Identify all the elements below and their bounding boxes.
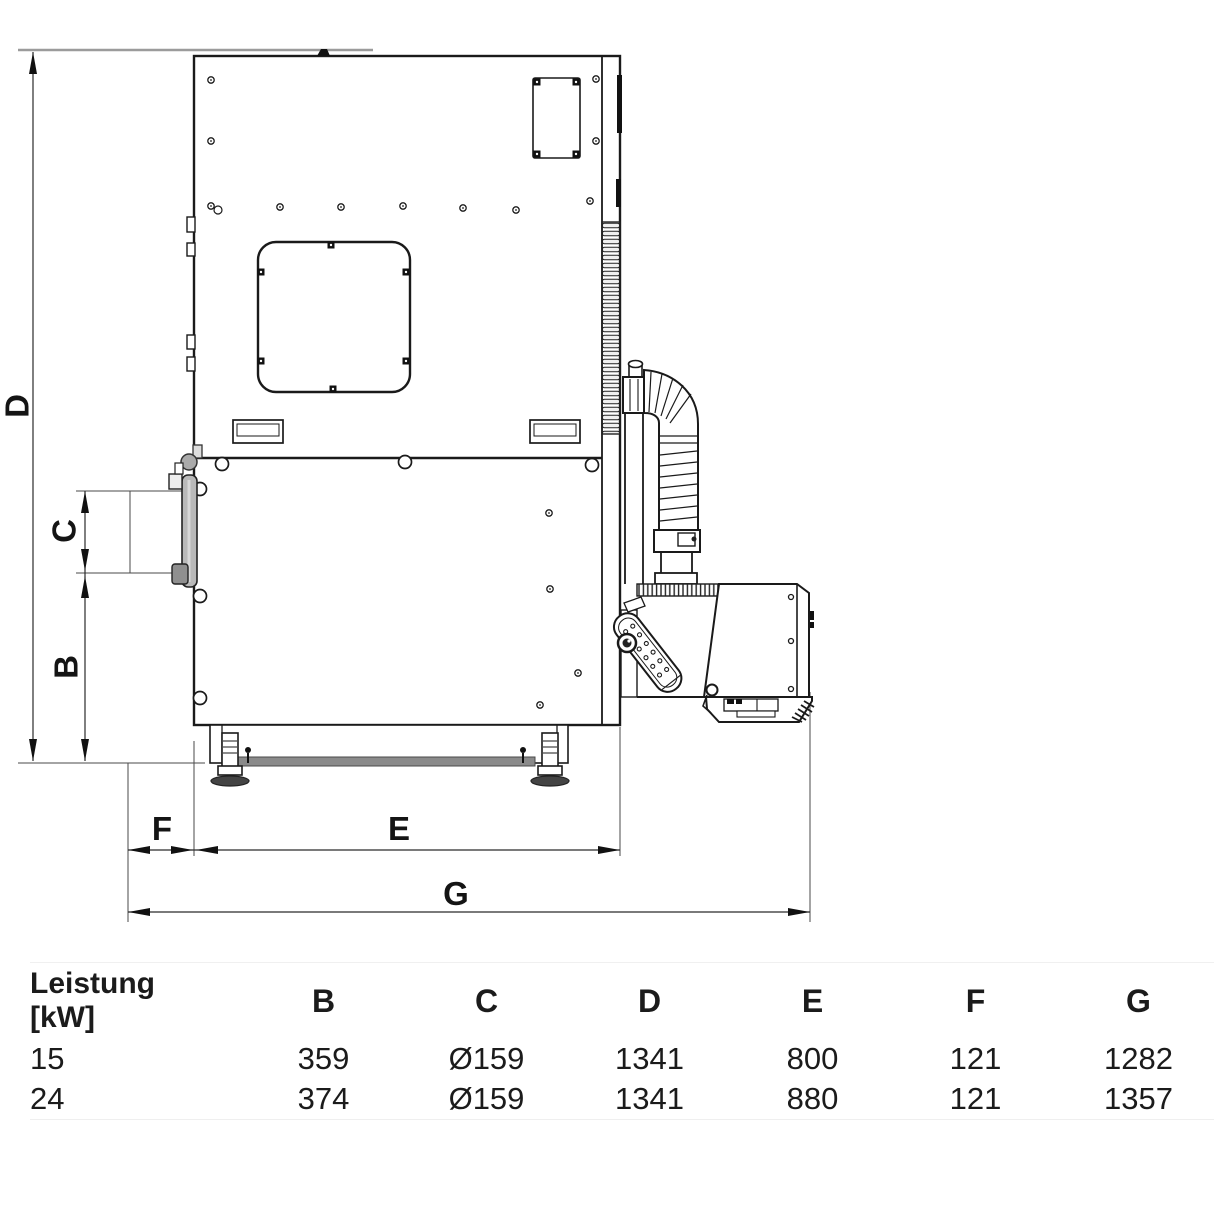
column-header-g: G — [1057, 963, 1214, 1039]
pellet-boiler-dimension-sheet: D C B F E G — [0, 0, 1214, 1214]
right-edge-hinge-top — [617, 75, 622, 133]
dim-label-g: G — [443, 875, 469, 912]
table-cell: Ø159 — [405, 1039, 568, 1079]
table-cell: 800 — [731, 1039, 894, 1079]
table-cell: Ø159 — [405, 1079, 568, 1119]
base-bar — [222, 757, 535, 766]
table-row-header: Leistung [kW] — [30, 963, 242, 1039]
row-header-line1: Leistung — [30, 967, 242, 1001]
flue-bracket — [172, 564, 188, 584]
flex-hose — [644, 370, 698, 532]
dim-label-b: B — [48, 655, 85, 679]
flue-collar — [169, 474, 182, 489]
flue-fitting — [623, 361, 645, 414]
column-header-d: D — [568, 963, 731, 1039]
right-edge-hinge-mid — [616, 179, 621, 207]
table-cell: 359 — [242, 1039, 405, 1079]
corrugated-strip — [602, 222, 620, 434]
base-frame — [210, 725, 569, 786]
dim-label-f: F — [152, 810, 172, 847]
table-row: 24 374 Ø159 1341 880 121 1357 — [30, 1079, 1214, 1120]
handle-slot-right — [530, 420, 580, 443]
dim-label-c: C — [46, 519, 83, 543]
flue-outlet — [169, 463, 197, 587]
table-cell: 121 — [894, 1079, 1057, 1119]
table-cell: 1357 — [1057, 1079, 1214, 1119]
dimension-table: Leistung [kW] B C D E F G 15 359 Ø159 13… — [0, 950, 1214, 1120]
table-cell: 374 — [242, 1079, 405, 1119]
table-cell: 1341 — [568, 1079, 731, 1119]
table-cell: 1282 — [1057, 1039, 1214, 1079]
dim-label-e: E — [388, 810, 410, 847]
column-header-c: C — [405, 963, 568, 1039]
hose-clamp — [654, 530, 700, 552]
burner-housing — [704, 584, 814, 698]
access-panel — [533, 78, 580, 158]
vent-slats — [637, 584, 718, 596]
table-cell: 880 — [731, 1079, 894, 1119]
power-value: 24 — [30, 1079, 242, 1119]
dim-label-d: D — [0, 394, 36, 418]
power-value: 15 — [30, 1039, 242, 1079]
column-header-b: B — [242, 963, 405, 1039]
table-cell: 121 — [894, 1039, 1057, 1079]
table-cell: 1341 — [568, 1039, 731, 1079]
table-row: 15 359 Ø159 1341 800 121 1282 — [30, 1039, 1214, 1079]
handle-slot-left — [233, 420, 283, 443]
row-header-line2: [kW] — [30, 1001, 242, 1035]
burner-assembly — [609, 361, 814, 723]
inspection-window — [258, 242, 411, 393]
table-header-row: Leistung [kW] B C D E F G — [30, 962, 1214, 1039]
tube-flange — [655, 573, 697, 584]
boiler-body — [181, 49, 622, 725]
column-header-e: E — [731, 963, 894, 1039]
column-header-f: F — [894, 963, 1057, 1039]
